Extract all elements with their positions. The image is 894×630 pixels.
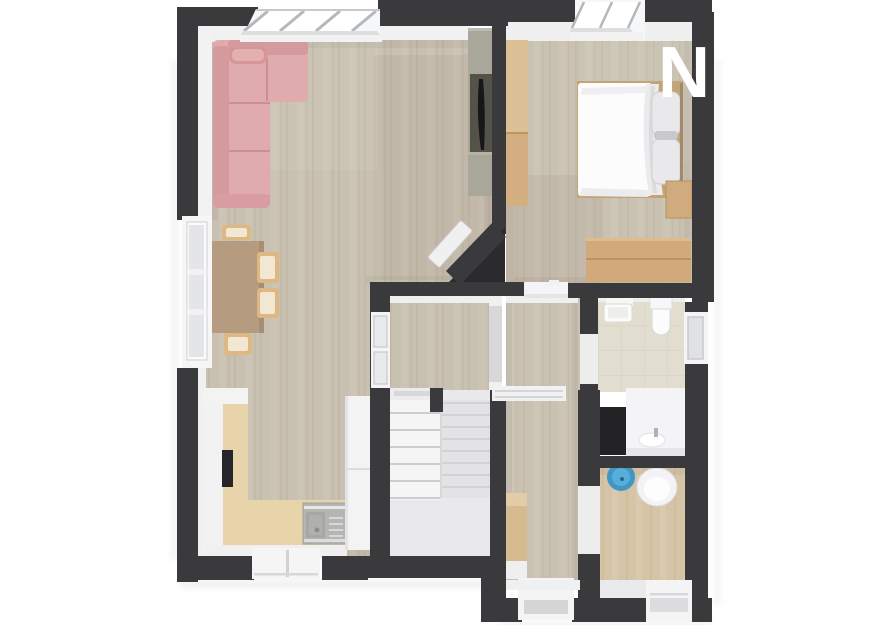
svg-text:N: N xyxy=(658,33,710,113)
